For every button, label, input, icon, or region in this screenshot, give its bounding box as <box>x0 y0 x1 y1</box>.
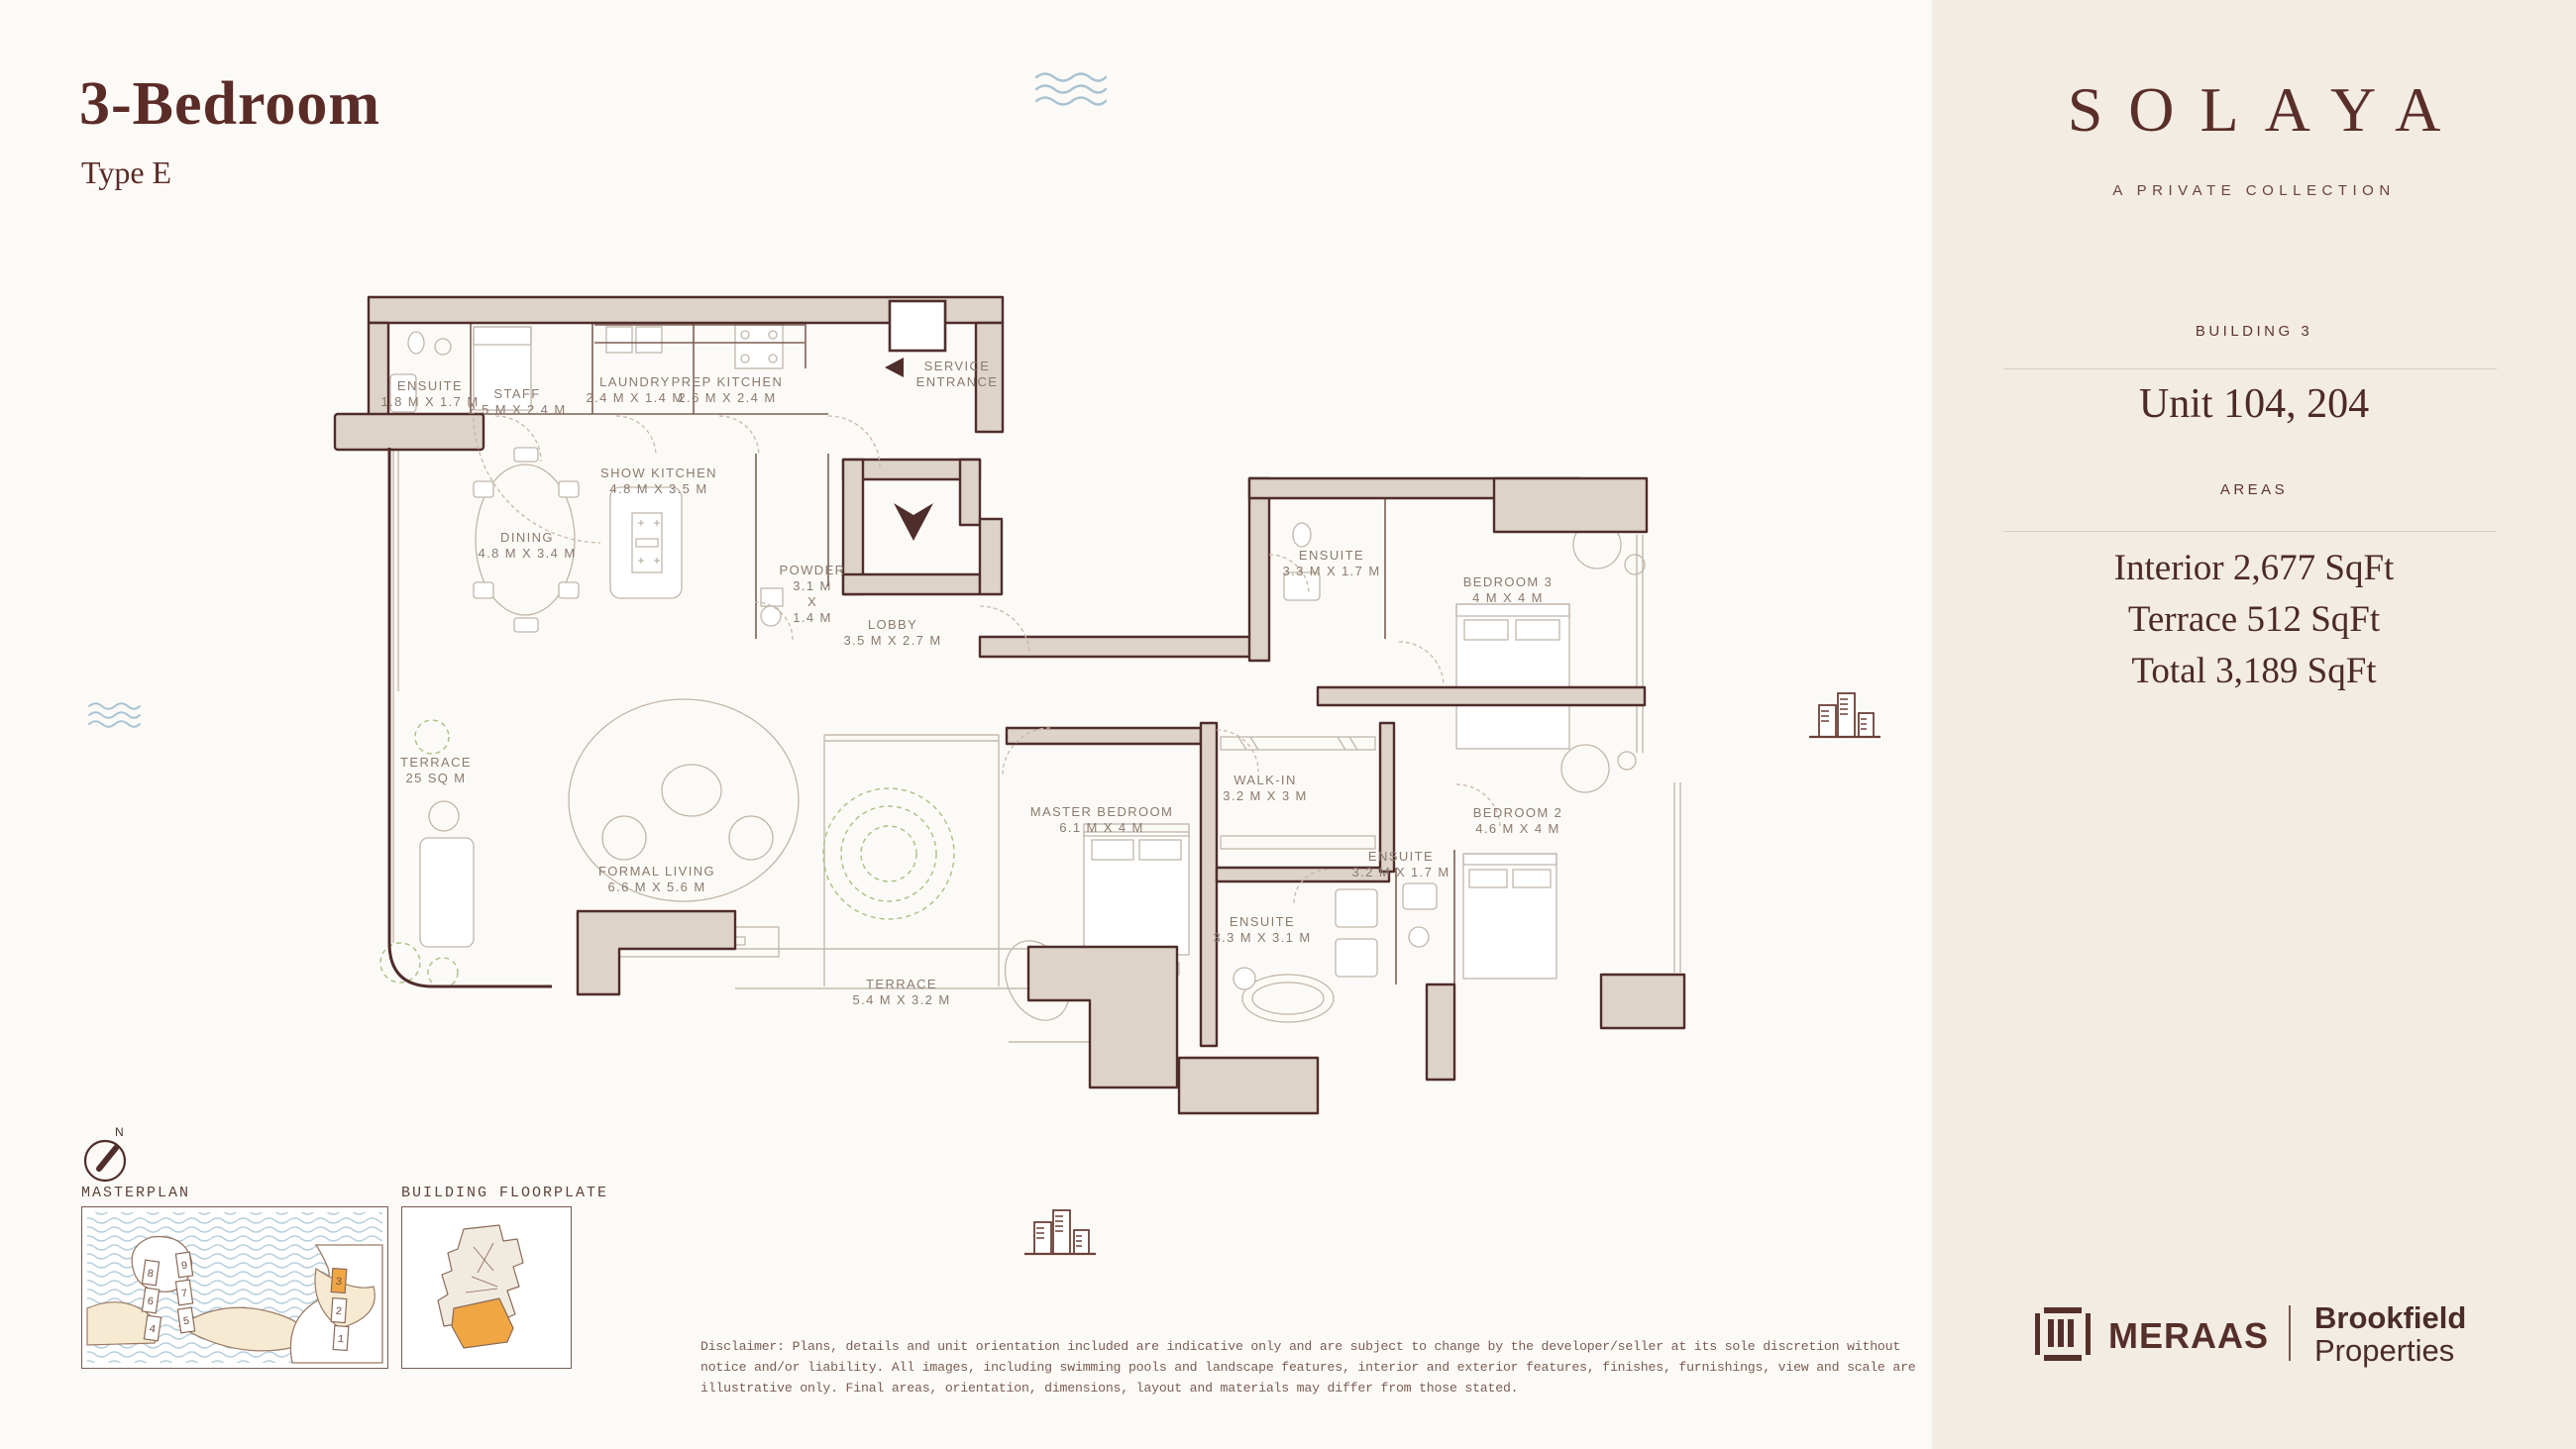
room-label-terrace-25: TERRACE25 SQ M <box>400 755 472 786</box>
compass-north-label: N <box>115 1125 124 1139</box>
entrance-arrow <box>894 503 933 541</box>
room-label-walk-in: WALK-IN3.2 M X 3 M <box>1223 773 1307 804</box>
room-label-bedroom-2: BEDROOM 24.6 M X 4 M <box>1473 805 1563 837</box>
room-label-ensuite-bed2: ENSUITE3.2 M X 1.7 M <box>1351 849 1449 880</box>
masterplan-building-number-highlighted: 3 <box>335 1277 342 1289</box>
room-label-laundry: LAUNDRY2.4 M X 1.4 M <box>586 374 684 406</box>
room-label-terrace-center: TERRACE5.4 M X 3.2 M <box>852 977 950 1008</box>
areas-label: AREAS <box>1932 481 2576 498</box>
room-label-staff: STAFF2.5 M X 2.4 M <box>468 386 566 418</box>
room-label-powder: POWDER3.1 M X 1.4 M <box>780 563 846 626</box>
divider-rule <box>2003 368 2497 369</box>
room-label-master-bedroom: MASTER BEDROOM6.1 M X 4 M <box>1030 804 1174 836</box>
meraas-logo-icon <box>2035 1307 2098 1365</box>
floorplate-label: BUILDING FLOORPLATE <box>401 1185 608 1201</box>
unit-number: Unit 104, 204 <box>1932 380 2576 428</box>
area-figures: Interior 2,677 SqFt Terrace 512 SqFt Tot… <box>1932 543 2576 697</box>
room-label-formal-living: FORMAL LIVING6.6 M X 5.6 M <box>598 864 715 895</box>
area-terrace: Terrace 512 SqFt <box>1932 594 2576 646</box>
brookfield-line2: Properties <box>2314 1334 2466 1367</box>
building-label: BUILDING 3 <box>1932 323 2576 340</box>
waves-icon <box>87 701 143 735</box>
waves-icon <box>1033 71 1109 115</box>
area-total: Total 3,189 SqFt <box>1932 646 2576 697</box>
masterplan-label: MASTERPLAN <box>81 1185 190 1201</box>
brand-tagline: A PRIVATE COLLECTION <box>1932 182 2576 199</box>
brookfield-logo: Brookfield Properties <box>2314 1301 2466 1367</box>
room-label-ensuite-staff: ENSUITE1.8 M X 1.7 M <box>380 378 479 410</box>
floorplate-thumbnail <box>401 1206 572 1369</box>
room-label-dining: DINING4.8 M X 3.4 M <box>478 530 576 562</box>
masterplan-building-number: 1 <box>337 1334 345 1346</box>
masterplan-thumbnail: 8 6 4 9 7 5 3 2 1 <box>81 1206 388 1369</box>
buildings-icon <box>1807 685 1882 743</box>
area-interior: Interior 2,677 SqFt <box>1932 543 2576 594</box>
compass-icon <box>75 1127 139 1187</box>
service-entrance-arrow <box>885 358 904 377</box>
buildings-icon <box>1022 1200 1098 1260</box>
brookfield-line1: Brookfield <box>2314 1301 2466 1334</box>
info-sidebar: SOLAYA A PRIVATE COLLECTION BUILDING 3 U… <box>1932 0 2576 1449</box>
room-label-lobby: LOBBY3.5 M X 2.7 M <box>843 617 941 649</box>
brand-wordmark: SOLAYA <box>1932 73 2576 147</box>
page-title: 3-Bedroom <box>79 69 380 140</box>
page-subtitle: Type E <box>81 155 171 191</box>
room-label-ensuite-master: ENSUITE3.3 M X 3.1 M <box>1213 914 1311 946</box>
meraas-logo-text: MERAAS <box>2108 1315 2269 1357</box>
room-label-bedroom-3: BEDROOM 34 M X 4 M <box>1463 574 1554 606</box>
room-label-service-entrance: SERVICE ENTRANCE <box>916 359 999 390</box>
logo-divider <box>2289 1305 2291 1361</box>
disclaimer-text: Disclaimer: Plans, details and unit orie… <box>700 1337 1919 1399</box>
room-label-ensuite-bed3: ENSUITE3.3 M X 1.7 M <box>1282 548 1380 579</box>
room-label-prep-kitchen: PREP KITCHEN2.6 M X 2.4 M <box>672 374 784 406</box>
room-label-show-kitchen: SHOW KITCHEN4.8 M X 3.5 M <box>600 466 717 497</box>
masterplan-building-number: 2 <box>335 1306 342 1318</box>
brochure-page: 3-Bedroom Type E <box>0 0 2576 1449</box>
divider-rule <box>2003 531 2497 532</box>
